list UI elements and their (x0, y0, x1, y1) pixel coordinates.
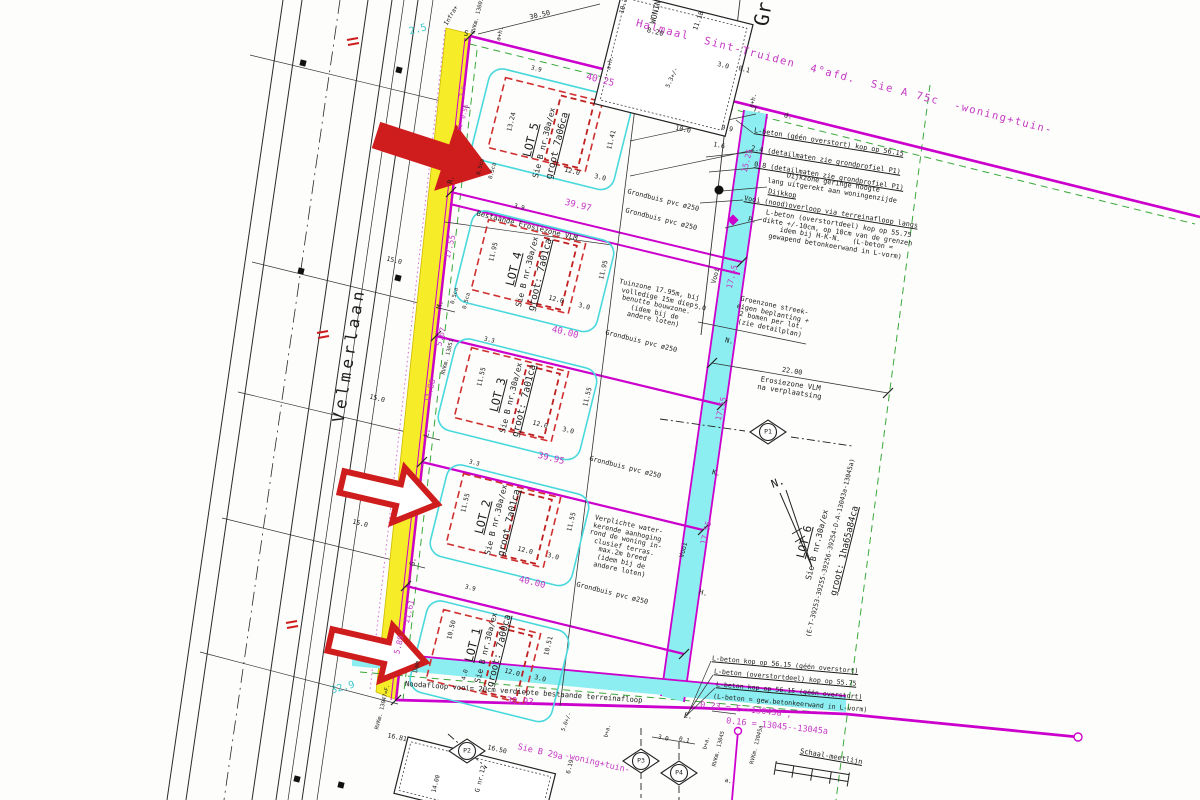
lot3-dim-3-0: 3.0 (561, 426, 574, 436)
point-l: L. (423, 428, 433, 438)
point-h: H. (698, 589, 708, 599)
lot3-dim-11-55a: 11.55 (476, 367, 488, 388)
dim-0-1-top: 0.1 (737, 65, 750, 75)
dim-6-19: 6.19 (566, 759, 576, 775)
lot4-dim-11-95b: 11.95 (598, 260, 610, 281)
dim-15-0-a: 15.0 (386, 256, 403, 267)
dim-11-88: 11.88 (424, 378, 439, 404)
lot5-dim-3-9: 3.9 (530, 65, 542, 74)
groenzone-note: Groenzone streek- eigen beplanting + 2 b… (733, 295, 811, 340)
lot3-dim-11-55b: 11.55 (582, 387, 594, 408)
lot2-dim-11-55b: 11.55 (566, 512, 578, 533)
lot5-dim-12-0: 12.0 (564, 167, 581, 178)
dim-0-56-m: 0.56 (461, 104, 471, 120)
point-m: M. (436, 300, 446, 310)
lot4-dim-11-95a: 11.95 (488, 242, 500, 263)
dim-14-00: 14.00 (432, 774, 443, 793)
dim-17-55-b: 17.55 (715, 396, 730, 422)
mark-ba-2: b+a. (702, 736, 711, 750)
profile-p3-label: P3 (637, 757, 645, 764)
profile-p1-label: P1 (764, 428, 772, 435)
point-k: K. (711, 469, 721, 479)
lot1-dim-3-0: 3.0 (533, 674, 546, 684)
boundary-40-25: 40.25 (585, 72, 615, 89)
dim-10-2: 10.2 (619, 0, 630, 14)
mark-ah-1: a+h. (606, 55, 616, 71)
boundary-39-93: 39.93 (506, 696, 534, 708)
schaal-meetlijn: Schaal-meetlijn (799, 748, 863, 767)
tuinzone-note: Tuinzone 17.95m, bij volledige 15m diep … (612, 278, 700, 332)
lot5-dim-3-0: 3.0 (593, 173, 606, 183)
street-gr-label: Gr (750, 0, 776, 28)
verplichte-note: Verplichte water- kerende aanhoging rond… (582, 514, 665, 581)
lot1-dim-3-9: 3.9 (464, 584, 476, 593)
point-e: E. (683, 712, 693, 722)
equation-2: 0.16 = 13045--13045a (726, 717, 829, 737)
north-label: N. (770, 475, 787, 491)
mark-ah-3: a+h. (496, 26, 506, 42)
dim-8-20: 8.20 (646, 27, 664, 39)
dim-22-00: 22.00 (781, 367, 802, 378)
boundary-39-95: 39.95 (537, 451, 566, 467)
point-p: P. (747, 216, 757, 226)
grondbuis-4: Grondbuis pvc ø250 (588, 455, 661, 480)
point-g: G. (409, 557, 419, 567)
lot2-dim-12-0: 12.0 (517, 546, 534, 557)
dim-16-50: 16.50 (487, 744, 508, 755)
point-n: N. (724, 337, 734, 347)
dim-17-55-a: 17.55 (726, 264, 741, 290)
point-d: d. (783, 112, 793, 122)
lot2-dim-11-55a: 11.55 (460, 493, 472, 514)
boundary-40-00-b: 40.00 (518, 575, 547, 591)
lot3-dim-12-0: 12.0 (532, 420, 549, 431)
dim-3-0-top: 3.0 (716, 61, 729, 71)
dim-0-1-bottom: 0.1 (678, 737, 690, 746)
erosiezone-vlm-note: Erosiezone VLM na verplaatsing (757, 375, 824, 401)
lot1-dim-10-51: 10.51 (543, 636, 555, 657)
dim-11-m: 11 (457, 124, 465, 133)
mark-a: a. (724, 778, 733, 786)
dim-2-0-m: 2.0 (459, 86, 468, 98)
lot2-dim-3-0: 3.0 (546, 552, 559, 562)
dim-17-55-left: 17.55 (444, 234, 459, 260)
dim-15-25: 15.25 (741, 148, 756, 174)
dim-5-3: 5.3+/- (665, 67, 680, 89)
dim-0-9: 0.9 (720, 124, 733, 134)
lot4-dim-12-0: 12.0 (548, 295, 565, 306)
plan-labels-layer: Halmaal Sint-Truiden 4°afd. Sie A 75c -w… (0, 0, 1200, 800)
dim-16-81: 16.81 (387, 732, 408, 743)
rvkm-13047-f: RVKm. 13047=F. (374, 684, 391, 730)
street-name: Velmerlaan (329, 286, 368, 423)
dim-05ca-1: 0.5ca (476, 158, 486, 176)
point-s: S (463, 29, 469, 38)
grondbuis-5: Grondbuis pvc ø250 (575, 581, 648, 606)
rvkm-13045: RVKm. 13045 (712, 731, 727, 768)
dim-10-0: 10.0 (675, 125, 692, 135)
profile-p4-label: P4 (675, 769, 683, 776)
dim-5-67: 5.67 (435, 327, 448, 348)
profile-p2-label: P2 (463, 747, 471, 754)
grondbuis-3: Grondbuis pvc ø250 (604, 329, 677, 354)
dim-05ca-3: 0.5ca (450, 287, 460, 305)
boundary-40-00-a: 40.00 (551, 325, 580, 341)
rvkm-13045a: RVKm. 13045a (749, 725, 765, 765)
dim-5-0-pm: 5.0+/- (561, 712, 574, 733)
point-t: T. (752, 106, 762, 116)
mark-ba-1: b+a. (603, 724, 612, 738)
dim-5-89: 5.89 (393, 635, 406, 656)
lot1-dim-4-0: 4.0 (461, 669, 470, 681)
dim-1-6: 1.6 (712, 141, 725, 151)
lot3-dim-3-3: 3.3 (483, 336, 495, 345)
dim-30-50: 30.50 (529, 10, 551, 22)
woning-top-label: WONING (649, 0, 665, 25)
lot1-dim-10-50: 10.50 (446, 620, 458, 641)
vooi-label-1: Vooi (711, 268, 722, 285)
dim-15-0-b: 15.0 (369, 394, 386, 405)
lot5-dim-11-41: 11.41 (606, 130, 618, 151)
dam-label: Dam (412, 660, 422, 673)
dim-05ca-4: 0.5ca (462, 292, 472, 310)
woning-nr12-label: G nr.12 (474, 765, 488, 793)
sie-b-29a: Sie B 29a (516, 743, 563, 763)
lot5-dim-13-24: 13.24 (506, 112, 518, 133)
dim-3-0-bottom: 3.0 (657, 735, 669, 744)
handnote-32-9: 32.9 (330, 679, 356, 696)
survey-plan-page: Halmaal Sint-Truiden 4°afd. Sie A 75c -w… (0, 0, 1200, 800)
dim-17-55-c: 17.55 (700, 520, 715, 546)
rvkm-13001: RVKm. 13001 (471, 0, 486, 34)
dim-05ca-2: 0.5ca (488, 162, 498, 180)
dim-11-61: 11.61 (403, 599, 418, 625)
handnote-2-5: 2.5 (408, 22, 428, 37)
dim-11-18: 11.18 (692, 11, 706, 32)
vooi-label-2: Vooi (679, 542, 690, 559)
lot4-dim-3-0: 3.0 (577, 302, 590, 312)
boundary-39-97: 39.97 (564, 198, 593, 214)
infra-label: Infra+ (444, 5, 461, 27)
grondbuis-2: Grondbuis pvc ø250 (624, 207, 697, 232)
lot2-dim-3-3: 3.3 (468, 459, 480, 468)
point-r: R. (447, 175, 457, 185)
municipality-header: Halmaal Sint-Truiden 4°afd. Sie A 75c -w… (635, 18, 1054, 137)
lot4-dim-3-9: 3.9 (513, 203, 525, 212)
lot1-dim-12-0: 12.0 (504, 668, 521, 679)
dim-15-0-c: 15.0 (352, 519, 369, 530)
erosiezone-bestaande: Bestaande Erosiezone VLM (476, 210, 579, 243)
